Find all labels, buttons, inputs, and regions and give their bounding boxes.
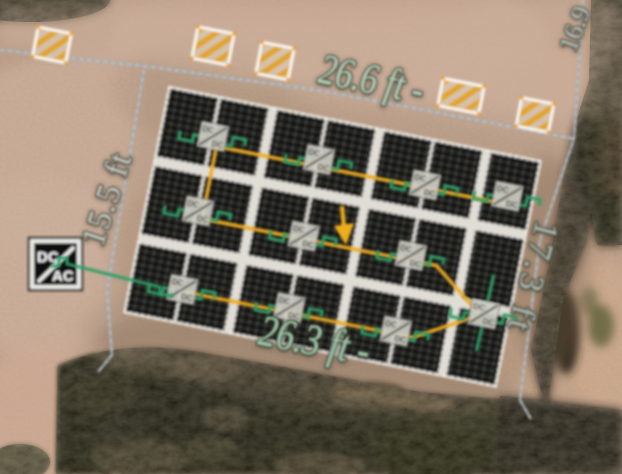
svg-text:AC: AC [52,268,74,285]
svg-text:DC: DC [37,249,59,266]
